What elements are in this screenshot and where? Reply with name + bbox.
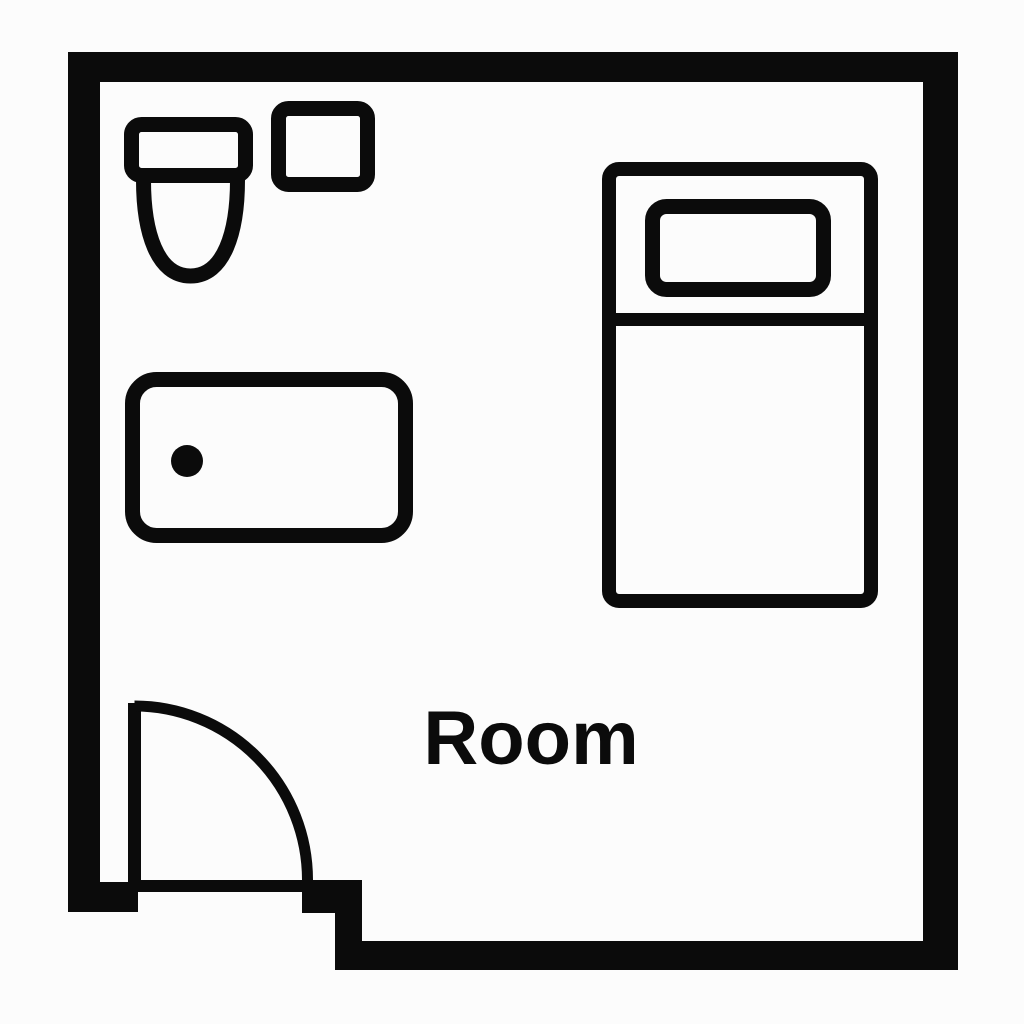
door-leaf [128, 703, 141, 885]
floor-plan: Room [0, 0, 1024, 1024]
wall-notch-upper [302, 880, 362, 913]
toilet-tank [132, 125, 246, 176]
wall-notch-step [335, 912, 362, 944]
pillow [653, 207, 824, 290]
bathtub-icon [133, 380, 406, 536]
wall-door-jamb-left [100, 882, 138, 912]
sink-basin [279, 109, 368, 185]
sink-icon [279, 109, 368, 185]
room-walls [68, 52, 958, 970]
toilet-bowl [144, 180, 238, 276]
door [128, 703, 308, 892]
wall-left [68, 52, 100, 912]
bathtub-drain [171, 445, 203, 477]
floor-plan-svg: Room [0, 0, 1024, 1024]
wall-top [68, 52, 958, 82]
room-label: Room [423, 696, 638, 781]
wall-bottom [335, 941, 958, 970]
door-threshold-line [138, 880, 304, 892]
toilet-icon [132, 125, 246, 277]
door-swing-arc [135, 706, 308, 880]
bed-icon [603, 169, 877, 601]
wall-right [923, 52, 958, 970]
